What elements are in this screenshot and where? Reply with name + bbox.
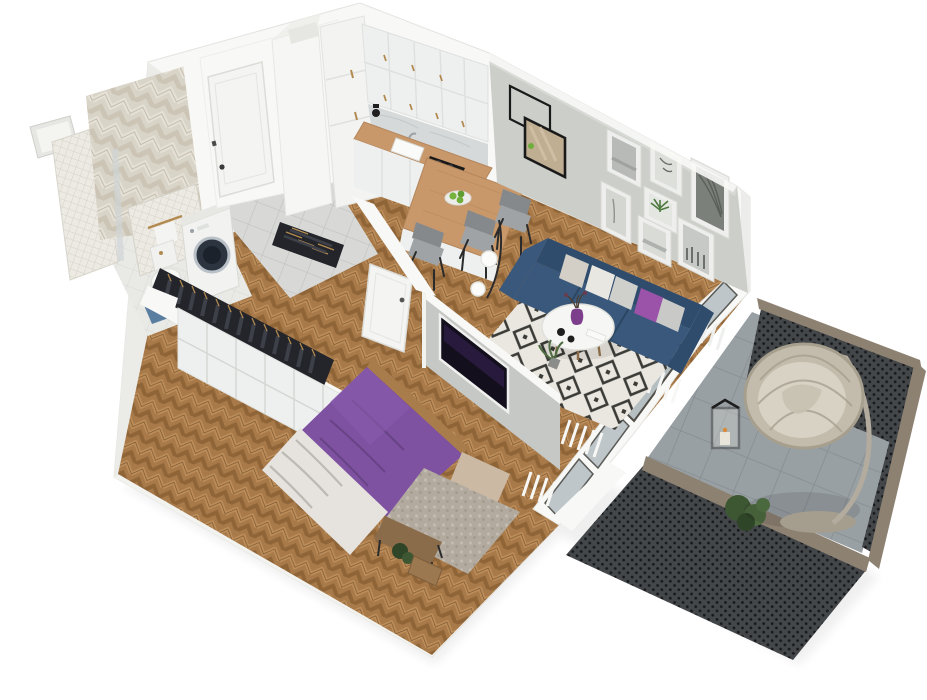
door-handle [219, 164, 224, 169]
fruit-plate [445, 191, 471, 205]
candle-lantern [712, 400, 739, 448]
kettle [372, 104, 380, 117]
entrance-door [208, 62, 274, 197]
bedroom-door-open [362, 264, 412, 352]
cup [557, 328, 565, 336]
apartment-render [0, 0, 927, 700]
apartment-floorplan-svg [0, 0, 927, 700]
door-handle [400, 298, 405, 303]
cup [568, 336, 575, 343]
flush-button [159, 251, 163, 255]
